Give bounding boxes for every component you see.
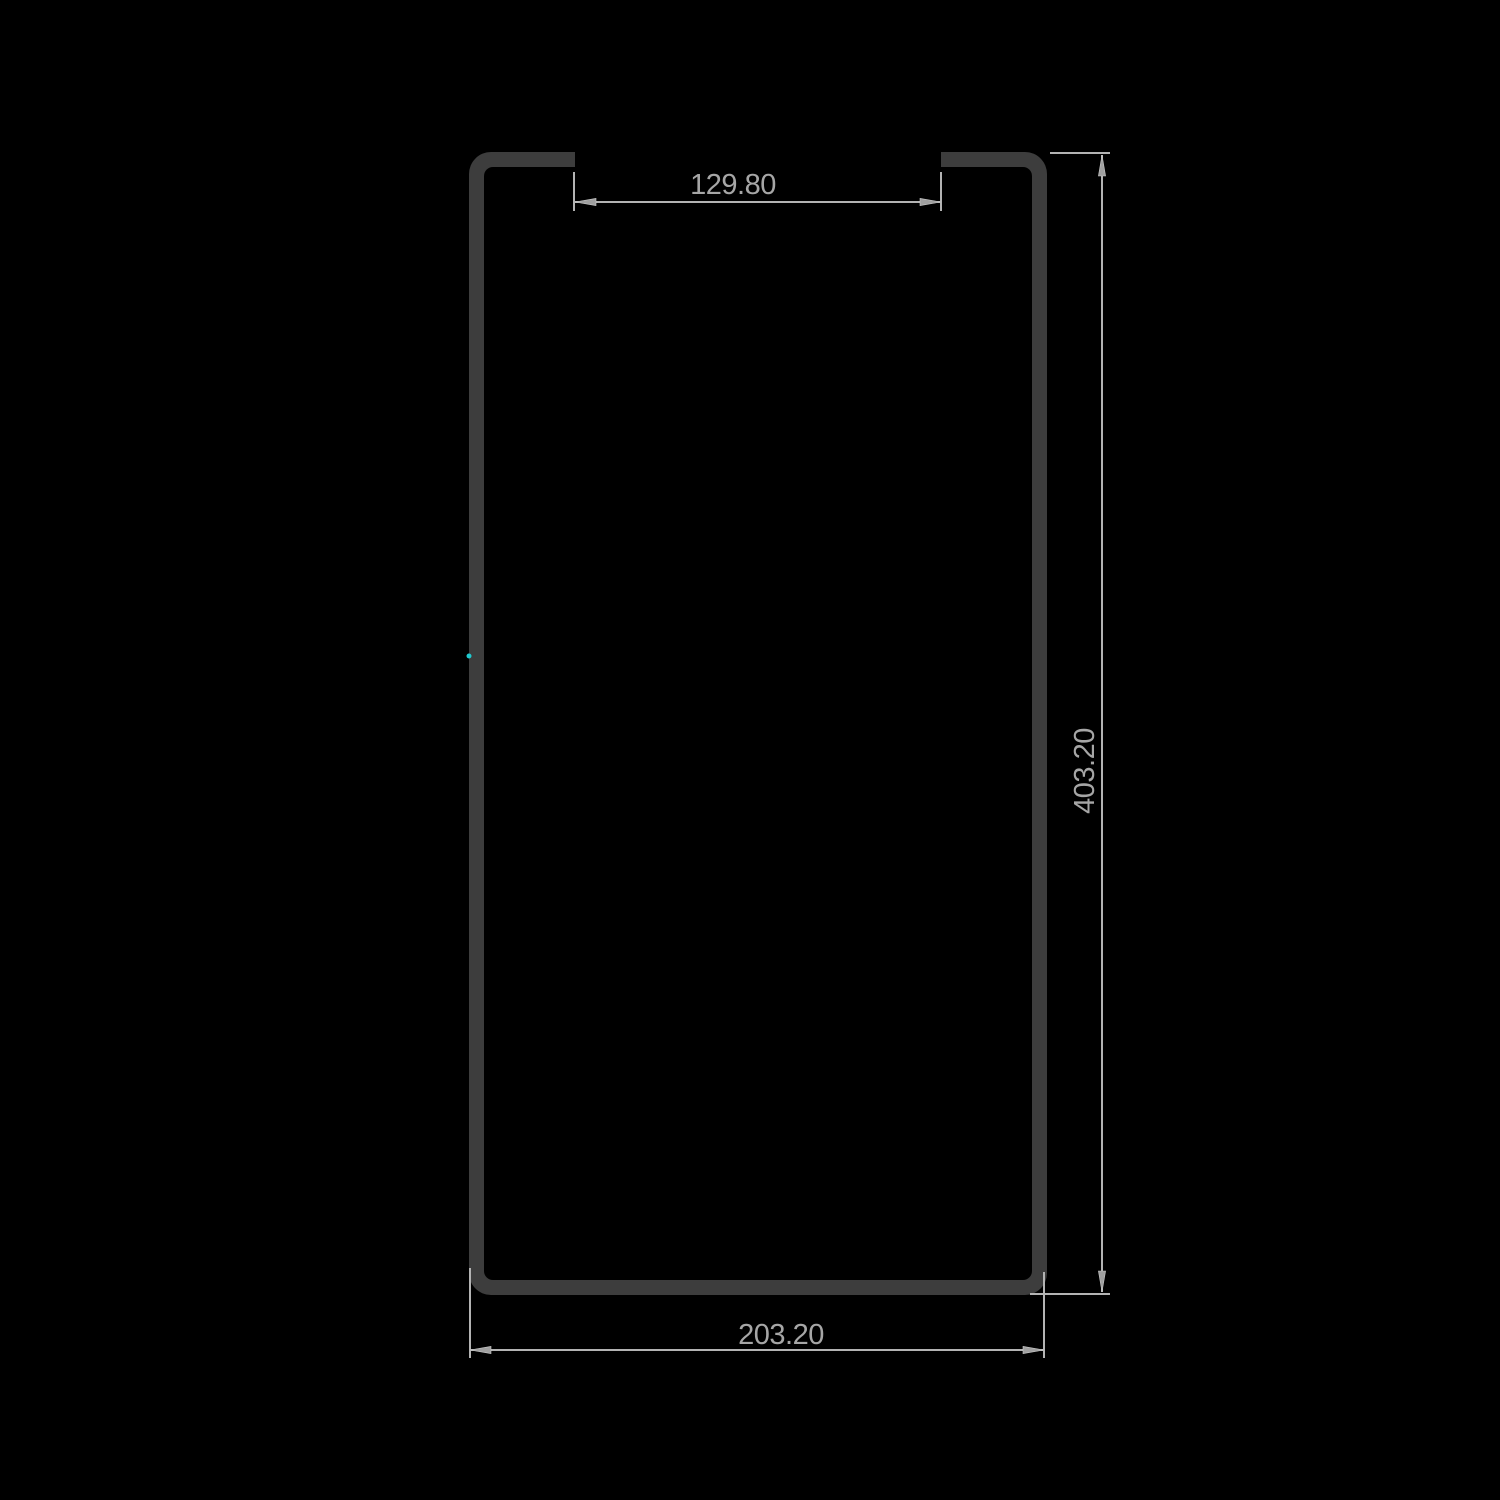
overall-height-value: 403.20: [1069, 728, 1101, 814]
drawing-canvas: 129.80 403.20 203.20: [0, 0, 1500, 1500]
channel-profile: [467, 143, 1048, 1295]
profile-inner-cutout: [484, 167, 1032, 1280]
overall-width-value: 203.20: [738, 1319, 824, 1351]
technical-drawing: 129.80 403.20 203.20: [0, 0, 1500, 1500]
slot-width-value: 129.80: [690, 169, 776, 201]
profile-slot-opening: [575, 143, 941, 170]
vertex-marker-icon: [467, 654, 472, 659]
